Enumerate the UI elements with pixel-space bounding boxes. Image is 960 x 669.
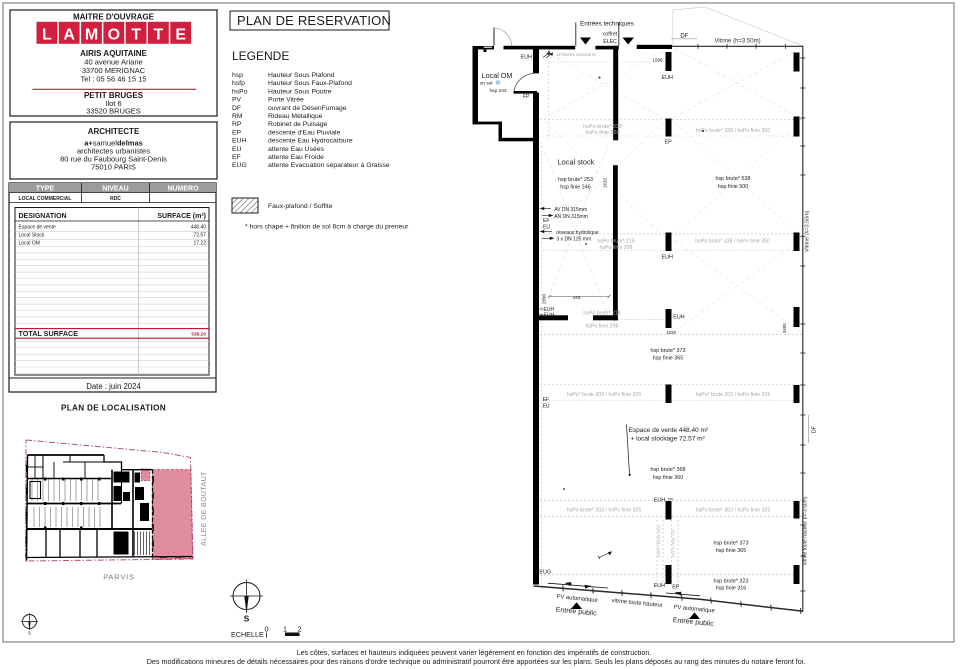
svg-text:+ local stockage 72.57 m²: + local stockage 72.57 m² [631,436,706,443]
svg-text:hsPo brute* 216: hsPo brute* 216 [597,239,634,245]
svg-text:réseaux hydrolique: réseaux hydrolique [556,230,598,236]
svg-text:Les côtes, surfaces et hauteur: Les côtes, surfaces et hauteurs indiquée… [297,648,652,657]
svg-text:TOTAL SURFACE: TOTAL SURFACE [19,329,79,338]
svg-text:hsp brute* 323: hsp brute* 323 [713,579,748,585]
svg-text:33520 BRUGES: 33520 BRUGES [86,107,141,116]
svg-text:Entrées techniques: Entrées techniques [580,21,634,28]
svg-text:attente Eau Froide: attente Eau Froide [268,154,324,161]
svg-text:ALLEE DE BOUTAUT: ALLEE DE BOUTAUT [201,471,208,546]
svg-text:Entrée public: Entrée public [555,607,597,618]
svg-text:75010 PARIS: 75010 PARIS [91,163,136,172]
svg-text:PARVIS: PARVIS [103,573,135,582]
svg-text:PV: PV [232,97,242,104]
svg-text:AV DN 315mm: AV DN 315mm [554,207,587,213]
svg-text:on sol: on sol [480,81,493,87]
svg-text:Entrée public: Entrée public [672,617,714,628]
svg-text:PLAN DE RESERVATION: PLAN DE RESERVATION [237,13,391,28]
svg-text:hsPo* brute 303 / hsPo finie 3: hsPo* brute 303 / hsPo finie 325 [696,392,771,398]
svg-text:0: 0 [265,625,269,634]
svg-text:EP: EP [665,140,673,146]
svg-text:hsp: hsp [232,72,243,79]
svg-text:1632: 1632 [603,177,608,188]
svg-text:Local Stock: Local Stock [19,233,45,239]
svg-text:hsPo finie 350: hsPo finie 350 [585,130,619,136]
svg-text:538.20: 538.20 [191,332,206,338]
svg-text:Tel : 05 56 46 15 15: Tel : 05 56 46 15 15 [81,75,147,84]
svg-text:DF: DF [680,33,688,39]
svg-text:hsPo* brute 303: hsPo* brute 303 [656,525,661,557]
svg-text:1: 1 [283,625,287,634]
svg-text:hsPo* brute 303 / hsPo finie 3: hsPo* brute 303 / hsPo finie 325 [567,392,642,398]
svg-text:M: M [85,27,98,44]
svg-text:EF: EF [232,154,241,161]
svg-text:attente Eau Usées: attente Eau Usées [268,146,325,153]
svg-text:hsp finie 365: hsp finie 365 [653,356,684,362]
svg-text:hsp finie 316: hsp finie 316 [716,585,747,591]
svg-text:Local OM: Local OM [19,241,40,247]
svg-text:Local stock: Local stock [558,158,595,167]
svg-text:hsp finie 500: hsp finie 500 [718,184,749,190]
svg-text:RP: RP [232,121,242,128]
svg-text:3 x DN 125 mm: 3 x DN 125 mm [556,237,591,243]
svg-text:EF: EF [543,218,549,224]
svg-text:E: E [175,27,186,44]
svg-text:EF: EF [543,397,549,403]
svg-text:L: L [42,27,52,44]
svg-text:hsp finie 365: hsp finie 365 [716,548,747,554]
svg-text:AN DN 315mm: AN DN 315mm [554,214,588,220]
svg-text:descente Eau Hydrocarbure: descente Eau Hydrocarbure [268,138,353,145]
svg-text:SURFACE (m²): SURFACE (m²) [157,213,206,220]
svg-text:EUH: EUH [521,55,532,61]
svg-text:Espace de vente 448.40 m²: Espace de vente 448.40 m² [629,427,709,434]
svg-text:2: 2 [298,625,302,634]
svg-text:NUMERO: NUMERO [167,186,199,193]
svg-text:coffret: coffret [603,32,618,38]
svg-text:Des modifications mineures de: Des modifications mineures de détails né… [147,657,806,666]
svg-text:DF: DF [232,105,241,112]
svg-text:hsPo brute* 216: hsPo brute* 216 [583,310,620,316]
svg-text:Hauteur Sous Poutre: Hauteur Sous Poutre [268,88,332,95]
svg-text:vitrine toute hauteur (h=3.50m: vitrine toute hauteur (h=3.50m) [803,496,809,565]
svg-text:Hauteur Sous Faux-Plafond: Hauteur Sous Faux-Plafond [268,80,352,87]
svg-text:LOCAL COMMERCIAL: LOCAL COMMERCIAL [19,196,72,202]
svg-text:hsp brute* 373: hsp brute* 373 [650,348,685,354]
svg-text:Robinet de Puisage: Robinet de Puisage [268,121,328,128]
svg-text:hsp 243: hsp 243 [490,88,507,94]
svg-text:2890: 2890 [542,293,547,304]
svg-text:O: O [108,27,120,44]
svg-text:EUH: EUH [654,497,665,503]
svg-text:hsPo brute* 338 / hsPo finie 3: hsPo brute* 338 / hsPo finie 350 [695,239,770,245]
svg-text:EUG: EUG [539,569,551,575]
svg-text:ouvrant de DésenFumage: ouvrant de DésenFumage [268,105,347,112]
svg-text:EU: EU [232,146,242,153]
svg-text:1525: 1525 [666,330,677,335]
svg-text:3405: 3405 [782,323,787,334]
svg-text:Hauteur Sous Plafond: Hauteur Sous Plafond [268,72,335,79]
svg-text:EUG: EUG [232,162,247,169]
svg-text:445: 445 [573,295,581,301]
svg-text:hsp finie 360: hsp finie 360 [653,475,684,481]
svg-text:attente Evacuation séparateur: attente Evacuation séparateur à Graisse [268,162,390,169]
svg-text:MAITRE D'OUVRAGE: MAITRE D'OUVRAGE [73,13,155,22]
svg-text:Faux-plafond / Soffite: Faux-plafond / Soffite [268,203,333,210]
svg-text:Espace de vente: Espace de vente [19,225,56,231]
svg-text:hsPo brute* 338 / hsPo finie 3: hsPo brute* 338 / hsPo finie 350 [696,128,771,134]
svg-text:hsp brute* 538: hsp brute* 538 [715,176,750,182]
svg-text:PLAN DE LOCALISATION: PLAN DE LOCALISATION [61,404,166,413]
svg-text:EUH: EUH [544,312,555,318]
svg-text:S: S [244,614,250,624]
svg-text:Local OM: Local OM [482,71,513,80]
svg-text:hsPo brute* 303 / hsPo finie 3: hsPo brute* 303 / hsPo finie 325 [567,508,642,514]
svg-text:TYPE: TYPE [36,186,55,193]
svg-text:FP: FP [523,94,530,100]
svg-text:DESIGNATION: DESIGNATION [19,213,67,220]
svg-text:ATTENTES CROCHETS: ATTENTES CROCHETS [557,53,597,57]
svg-text:EUH: EUH [232,138,246,145]
svg-text:hsPo finie 208: hsPo finie 208 [586,324,619,330]
svg-text:Rideau Métallique: Rideau Métallique [268,113,323,120]
svg-text:vitrine toute hauteur: vitrine toute hauteur [611,598,663,609]
svg-text:EU: EU [543,403,550,409]
svg-text:A: A [63,27,75,44]
svg-text:* hors chape + finition de sol: * hors chape + finition de sol 6cm à cha… [245,224,409,231]
svg-text:hsPo: hsPo [232,88,248,95]
svg-text:1596: 1596 [653,58,664,63]
svg-text:LEGENDE: LEGENDE [232,49,289,63]
svg-text:RM: RM [232,113,243,120]
svg-text:DF: DF [812,425,818,433]
svg-text:S: S [28,631,31,636]
svg-text:hsfp: hsfp [232,80,245,87]
svg-text:T: T [154,27,164,44]
svg-text:hsPo finie 208: hsPo finie 208 [600,245,633,251]
svg-text:EP: EP [232,129,242,136]
svg-text:Vitrine (h=3.50m): Vitrine (h=3.50m) [805,210,811,252]
svg-text:descente d'Eau Pluviale: descente d'Eau Pluviale [268,129,341,136]
svg-text:hsp brute* 368: hsp brute* 368 [650,467,685,473]
svg-text:PV automatique: PV automatique [556,594,598,604]
svg-text:Date : juin 2024: Date : juin 2024 [86,382,141,391]
svg-text:ELEC: ELEC [603,39,617,45]
svg-text:EU: EU [543,224,550,230]
svg-text:17.22: 17.22 [193,241,206,247]
svg-text:RDC: RDC [110,196,121,202]
svg-text:hsp brute* 373: hsp brute* 373 [713,541,748,547]
svg-text:hsp brute* 253: hsp brute* 253 [558,177,593,183]
svg-text:72.57: 72.57 [193,233,206,239]
svg-text:EUH: EUH [662,255,673,261]
svg-text:EUH: EUH [673,315,684,321]
svg-text:NIVEAU: NIVEAU [102,186,128,193]
svg-text:EUH: EUH [654,583,665,589]
svg-text:hsPo brute* 303 / hsPo finie 3: hsPo brute* 303 / hsPo finie 325 [696,508,771,514]
svg-text:hsPo finie 325: hsPo finie 325 [671,529,676,557]
svg-text:ECHELLE: ECHELLE [231,630,264,639]
svg-text:EP: EP [672,584,680,590]
svg-text:448.40: 448.40 [191,225,207,231]
svg-text:ARCHITECTE: ARCHITECTE [88,127,140,136]
svg-text:T: T [131,27,141,44]
svg-text:Porte Vitrée: Porte Vitrée [268,97,304,104]
svg-text:EUH: EUH [662,75,673,81]
svg-text:Vitrine (h=3.50m): Vitrine (h=3.50m) [715,39,761,45]
svg-text:hsp finie 246: hsp finie 246 [560,185,591,191]
